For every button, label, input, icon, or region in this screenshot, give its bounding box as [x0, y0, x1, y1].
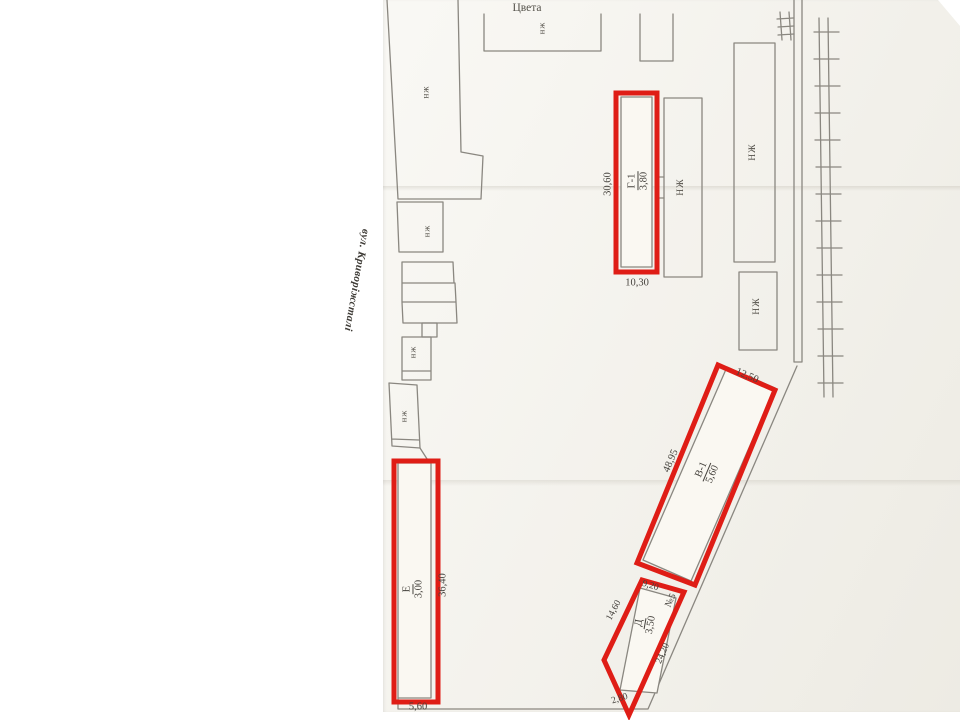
railway-spur-lines — [777, 12, 794, 40]
building-steps-outline — [402, 262, 457, 323]
plan-linework — [0, 0, 960, 720]
building-d-label: нж — [409, 346, 418, 358]
building-left-label: нж — [421, 85, 430, 98]
label-d-fraction: Д 3,50 — [632, 611, 659, 637]
g1-code: Г-1 — [626, 172, 638, 191]
g1-height: 3,80 — [639, 170, 650, 192]
e-code: Е — [401, 584, 413, 594]
dim-g1-length: 30,60 — [602, 172, 613, 196]
dim-e-width: 5,60 — [409, 701, 427, 712]
label-g1-fraction: Г-1 3,80 — [626, 170, 649, 192]
dim-g1-width: 10,30 — [625, 277, 649, 288]
label-e-fraction: Е 3,00 — [401, 578, 424, 600]
scanned-site-plan: Цвета вул. Криворіжсталі нж нж нж нж нж … — [0, 0, 960, 720]
building-g1-neighbor-label: НЖ — [677, 178, 687, 195]
building-top-a-label: нж — [538, 22, 547, 34]
page-corner-fold — [938, 0, 960, 26]
dim-e-length: 36,40 — [437, 573, 448, 597]
building-left-outline — [387, 0, 483, 199]
building-right-tall-label: НЖ — [749, 143, 759, 160]
e-height: 3,00 — [414, 578, 425, 600]
building-notch-outline — [422, 323, 437, 337]
plan-title: Цвета — [512, 2, 541, 14]
building-c-outline — [397, 202, 443, 252]
railway-rails — [819, 18, 833, 397]
building-top-b-outline — [640, 14, 673, 61]
building-c-label: нж — [423, 225, 432, 237]
building-e2-label: нж — [400, 410, 409, 422]
building-right-small-label: НЖ — [753, 297, 763, 314]
building-d-outline — [402, 337, 431, 380]
road-lines — [794, 0, 802, 362]
